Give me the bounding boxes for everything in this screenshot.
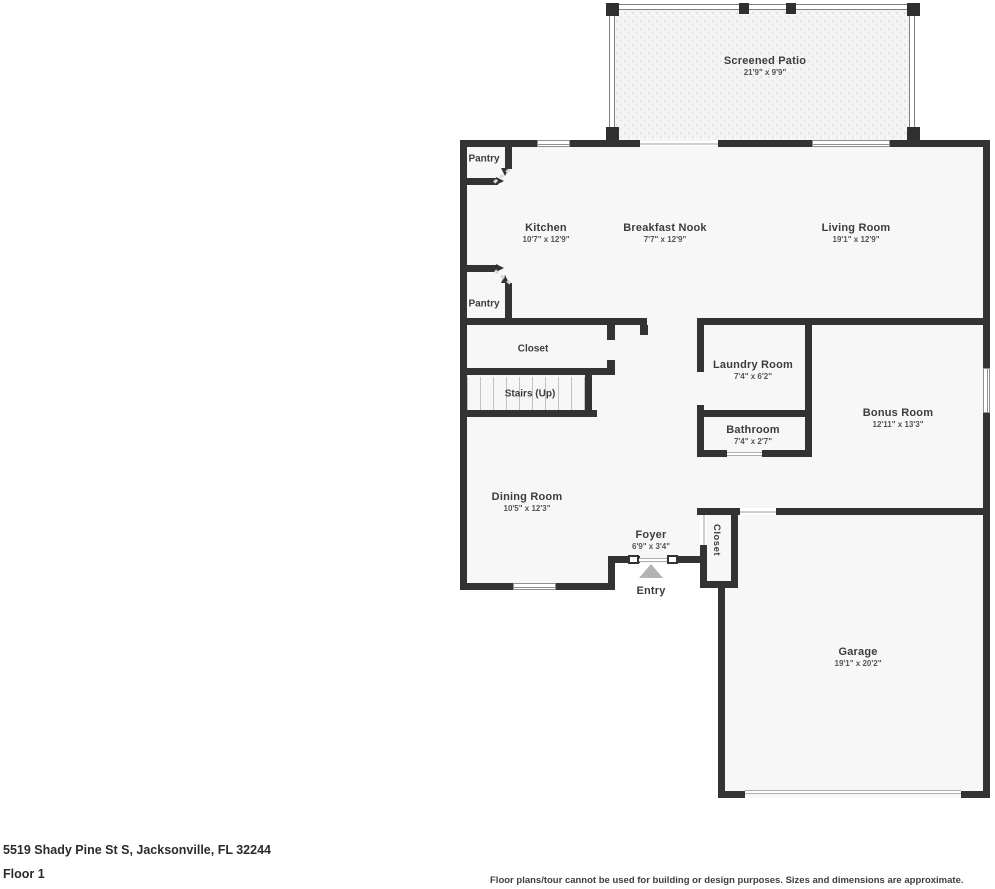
door-opening (727, 452, 762, 456)
wall-segment (697, 508, 740, 515)
room-label-stairs: Stairs (Up) (505, 389, 556, 400)
wall-segment (460, 318, 647, 325)
wall-segment (505, 147, 512, 169)
patio-screen-wall (619, 4, 739, 10)
room-label-garage: Garage 19'1" x 20'2" (835, 646, 882, 668)
room-label-bonus-room: Bonus Room 12'11" x 13'3" (863, 407, 933, 429)
floor-label: Floor 1 (3, 867, 45, 881)
wall-segment (718, 791, 745, 798)
patio-screen-wall (609, 16, 615, 127)
closet-door-opening (700, 515, 707, 545)
window (812, 140, 890, 147)
wall-segment (640, 325, 648, 335)
window (983, 368, 990, 413)
entry-door-opening (639, 558, 668, 562)
wall-segment (762, 450, 812, 457)
room-label-dining-room: Dining Room 10'5" x 12'3" (492, 491, 563, 513)
wall-segment (961, 791, 990, 798)
patio-post (606, 127, 619, 140)
entry-direction-icon (639, 564, 663, 578)
wall-segment (697, 318, 704, 372)
patio-post (739, 3, 749, 14)
patio-door-opening (640, 141, 718, 146)
door-opening (740, 508, 776, 515)
room-label-hall-closet: Closet (518, 344, 549, 355)
window (537, 140, 570, 147)
wall-segment (697, 450, 727, 457)
wall-segment (460, 583, 513, 590)
room-label-entry: Entry (636, 585, 665, 597)
property-address: 5519 Shady Pine St S, Jacksonville, FL 3… (3, 843, 271, 857)
wall-segment (556, 583, 615, 590)
room-label-living-room: Living Room 19'1" x 12'9" (822, 222, 891, 244)
wall-segment (585, 375, 592, 415)
wall-segment (697, 410, 812, 417)
door-jamb (607, 325, 615, 340)
window (513, 583, 556, 590)
wall-segment (700, 545, 707, 583)
room-label-foyer: Foyer 6'9" x 3'4" (632, 529, 670, 551)
wall-segment (983, 140, 990, 368)
patio-post (907, 127, 920, 140)
wall-segment (460, 368, 615, 375)
room-label-breakfast-nook: Breakfast Nook 7'7" x 12'9" (623, 222, 707, 244)
patio-post (606, 3, 619, 16)
patio-screen-wall (909, 16, 915, 127)
wall-segment (697, 318, 990, 325)
room-label-pantry-bottom: Pantry (468, 299, 499, 310)
room-label-screened-patio: Screened Patio 21'9" x 9'9" (724, 55, 806, 77)
wall-segment (776, 508, 990, 515)
wall-segment (718, 140, 812, 147)
room-label-pantry-top: Pantry (468, 154, 499, 165)
wall-segment (805, 318, 812, 455)
wall-segment (460, 140, 537, 147)
door-jamb (667, 555, 678, 564)
room-label-bathroom: Bathroom 7'4" x 2'7" (726, 424, 780, 446)
wall-segment (718, 588, 725, 798)
wall-segment (890, 140, 990, 147)
patio-post (907, 3, 920, 16)
disclaimer-text: Floor plans/tour cannot be used for buil… (490, 875, 964, 886)
floor-plan-canvas: Screened Patio 21'9" x 9'9" Kitchen 10'7… (0, 0, 995, 889)
patio-screen-wall (749, 4, 786, 10)
wall-segment (700, 581, 738, 588)
room-label-laundry: Laundry Room 7'4" x 6'2" (713, 359, 793, 381)
wall-segment (460, 410, 597, 417)
wall-segment (570, 140, 640, 147)
door-jamb (628, 555, 639, 564)
room-label-entry-closet: Closet (711, 524, 722, 578)
wall-segment (983, 518, 990, 798)
patio-post (786, 3, 796, 14)
patio-screen-wall (796, 4, 907, 10)
wall-segment (983, 413, 990, 518)
garage-door (745, 790, 961, 794)
wall-segment (731, 515, 738, 588)
room-fill-foyer (592, 318, 704, 563)
wall-segment (460, 140, 467, 590)
room-label-kitchen: Kitchen 10'7" x 12'9" (523, 222, 570, 244)
wall-segment (505, 283, 512, 325)
